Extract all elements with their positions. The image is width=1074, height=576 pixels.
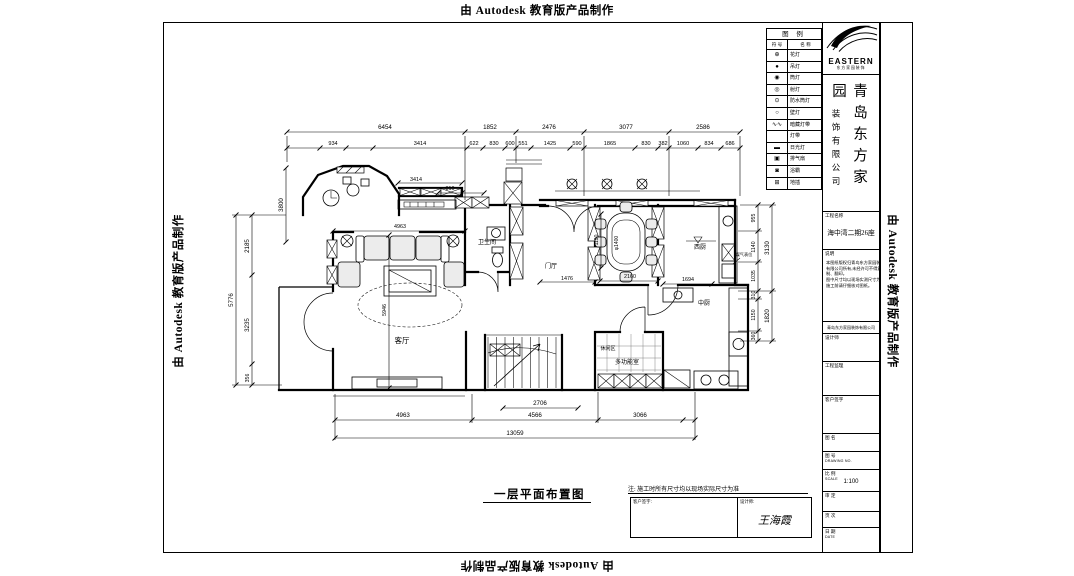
- field-label: 客户签字: [825, 397, 843, 403]
- autodesk-watermark-bottom: 由 Autodesk 教育版产品制作: [437, 558, 637, 574]
- scale-field: 比 例 SCALE 1:100: [823, 470, 879, 492]
- field-label: 页 次: [825, 513, 835, 519]
- designer-field: 设计师: [823, 334, 879, 362]
- field-label: 设计师: [825, 335, 839, 341]
- legend-symbol: ⊞: [767, 178, 788, 190]
- legend-row: ●吊灯: [767, 62, 821, 74]
- legend-name: 日光灯: [788, 143, 821, 154]
- field-sublabel: DRAWING NO.: [825, 459, 852, 463]
- legend-row: ▬日光灯: [767, 143, 821, 155]
- designer-signature-name: 王海霞: [738, 512, 811, 528]
- legend-row: ∿∿暗藏灯带: [767, 120, 821, 132]
- title-block: EASTERN 东方家园装饰 青岛东方家园 装饰有限公司 工程名称 海中湾二期2…: [822, 22, 880, 553]
- autocad-plot-page: { "watermark": { "top": "由 Autodesk 教育版产…: [0, 0, 1074, 576]
- legend-symbol: ⊙: [767, 96, 788, 107]
- drawing-name-field: 图 名: [823, 434, 879, 452]
- autodesk-watermark-top: 由 Autodesk 教育版产品制作: [437, 2, 637, 18]
- designer-signature-cell: 设计师: 王海霞: [738, 498, 811, 537]
- legend-col-symbol: 符 号: [767, 40, 788, 49]
- legend-row: ⊙防水筒灯: [767, 96, 821, 108]
- note-line: 施工前请仔细核对图纸。: [823, 283, 879, 289]
- project-value: 海中湾二期26座: [823, 227, 879, 237]
- legend-name: 射灯: [788, 85, 821, 96]
- legend-symbol: ▣: [767, 154, 788, 165]
- notes-cell: 说明 本图纸版权归青岛东方家园装饰 有限公司所有,未经许可不得复 制、翻印。 图…: [823, 250, 879, 322]
- legend-name: 吊灯: [788, 62, 821, 73]
- project-label: 工程名称: [825, 213, 843, 219]
- signature-table: 客户签字: 设计师: 王海霞: [630, 497, 812, 538]
- legend-row: ◉筒灯: [767, 73, 821, 85]
- legend-name: 筒灯: [788, 73, 821, 84]
- note-line: 图中尺寸均以现场实测尺寸为准,: [823, 277, 879, 283]
- client-sign-field: 客户签字: [823, 396, 879, 434]
- titleblock-right-divider: [880, 22, 881, 553]
- legend-row: ◙浴霸: [767, 166, 821, 178]
- legend-row: 灯带: [767, 131, 821, 143]
- legend-name: 浴霸: [788, 166, 821, 177]
- legend-row: ⊞地插: [767, 178, 821, 190]
- brand-name: EASTERN: [823, 57, 879, 66]
- legend-name: 排气扇: [788, 154, 821, 165]
- legend-name: 灯带: [788, 131, 821, 142]
- legend-col-name: 名 称: [788, 40, 821, 49]
- legend-name: 防水筒灯: [788, 96, 821, 107]
- lighting-legend: 图 例 符 号 名 称 ⊕花灯 ●吊灯 ◉筒灯 ◎射灯 ⊙防水筒灯 ○壁灯 ∿∿…: [766, 28, 822, 190]
- company-logo-cell: EASTERN 东方家园装饰: [823, 22, 879, 75]
- legend-symbol: ⊕: [767, 50, 788, 61]
- legend-symbol: ◙: [767, 166, 788, 177]
- field-label: 图 名: [825, 435, 835, 441]
- note-underline: [628, 493, 808, 494]
- date-field: 日 期 DATE: [823, 528, 879, 553]
- legend-row: ▣排气扇: [767, 154, 821, 166]
- legend-symbol: ◎: [767, 85, 788, 96]
- drawing-no-field: 图 号 DRAWING NO.: [823, 452, 879, 470]
- legend-symbol: ●: [767, 62, 788, 73]
- notes-label: 说明: [825, 251, 834, 257]
- legend-title: 图 例: [767, 29, 821, 40]
- legend-symbol: ○: [767, 108, 788, 119]
- company-name-cell: 青岛东方家园 装饰有限公司: [823, 75, 879, 212]
- field-label: 审 定: [825, 493, 835, 499]
- designer-signature-label: 设计师:: [740, 499, 754, 505]
- legend-symbol: ◉: [767, 73, 788, 84]
- company-address-cell: 青岛东方家园装饰有限公司: [823, 322, 879, 334]
- legend-name: 地插: [788, 178, 821, 190]
- legend-row: ◎射灯: [767, 85, 821, 97]
- legend-name: 壁灯: [788, 108, 821, 119]
- legend-header: 符 号 名 称: [767, 40, 821, 50]
- legend-name: 暗藏灯带: [788, 120, 821, 131]
- legend-name: 花灯: [788, 50, 821, 61]
- drawing-title-underline: [483, 502, 591, 503]
- page-field: 页 次: [823, 512, 879, 528]
- drawing-title: 一层平面布置图: [494, 486, 585, 502]
- company-name-sub: 装饰有限公司: [830, 109, 842, 190]
- brand-subtitle: 东方家园装饰: [823, 66, 879, 71]
- project-name-cell: 工程名称 海中湾二期26座: [823, 212, 879, 250]
- eastern-logo-icon: [823, 22, 879, 52]
- legend-symbol: [767, 131, 788, 142]
- legend-row: ○壁灯: [767, 108, 821, 120]
- legend-symbol: ∿∿: [767, 120, 788, 131]
- supervisor-field: 工程监理: [823, 362, 879, 396]
- legend-row: ⊕花灯: [767, 50, 821, 62]
- note-line: 本图纸版权归青岛东方家园装饰: [823, 260, 879, 266]
- client-signature-label: 客户签字:: [633, 499, 652, 505]
- approval-field: 审 定: [823, 492, 879, 512]
- legend-symbol: ▬: [767, 143, 788, 154]
- notes-lines: 本图纸版权归青岛东方家园装饰 有限公司所有,未经许可不得复 制、翻印。 图中尺寸…: [823, 260, 879, 288]
- field-label: 工程监理: [825, 363, 843, 369]
- construction-note: 注: 施工时所有尺寸均以现场实际尺寸为准: [628, 484, 739, 493]
- scale-value: 1:100: [823, 479, 879, 485]
- field-sublabel: DATE: [825, 535, 835, 539]
- client-signature-cell: 客户签字:: [631, 498, 738, 537]
